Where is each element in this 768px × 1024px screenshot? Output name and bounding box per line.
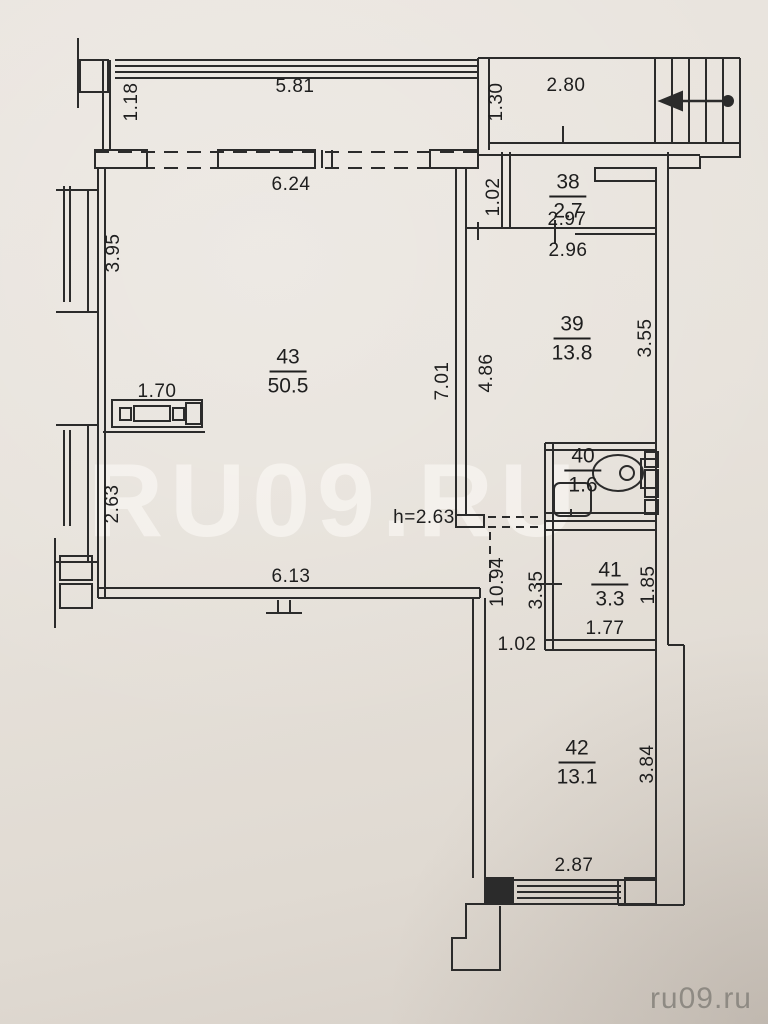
- room42-walls: [452, 598, 656, 970]
- watermark-corner: ru09.ru: [650, 982, 752, 1016]
- dim-room41-height-left: 3.35: [526, 571, 548, 610]
- room-label-42: 42 13.1: [557, 737, 598, 790]
- left-wall-windows: [56, 168, 105, 598]
- dim-room39-height-right: 3.55: [635, 319, 657, 358]
- dim-room39-height-left: 4.86: [476, 354, 498, 393]
- floorplan-page: RU09.RU: [0, 0, 768, 1024]
- dim-hall-height: 10.94: [487, 557, 509, 607]
- room-area: 13.8: [552, 342, 593, 366]
- room-number: 41: [591, 559, 628, 586]
- room-number: 39: [553, 313, 590, 340]
- dim-ceiling-height: h=2.63: [393, 507, 455, 529]
- dim-room38-height: 1.02: [483, 178, 505, 217]
- dim-central-wall-height: 7.01: [432, 362, 454, 401]
- dim-room43-top-width: 6.24: [272, 174, 311, 196]
- right-wall: [618, 152, 684, 905]
- dim-room43-bottom-width: 6.13: [272, 566, 311, 588]
- room-area: 50.5: [268, 375, 309, 399]
- room-label-39: 39 13.8: [552, 313, 593, 366]
- dim-room42-width: 2.87: [555, 855, 594, 877]
- dim-window-lower: 2.63: [102, 485, 124, 524]
- central-wall: [456, 168, 545, 585]
- dim-room41-height-right: 1.85: [638, 566, 660, 605]
- room-label-41: 41 3.3: [591, 559, 628, 612]
- kitchen-counter: [103, 400, 205, 432]
- dim-balcony-width: 5.81: [276, 76, 315, 98]
- room-number: 38: [549, 171, 586, 198]
- room-area: 3.3: [591, 588, 628, 612]
- toilet-icon: [593, 455, 656, 491]
- room-label-38: 38 2.7: [549, 171, 586, 224]
- room-area: 2.7: [549, 200, 586, 224]
- dim-landing-depth: 1.30: [486, 83, 508, 122]
- dashed-wall-room43-top: [95, 150, 478, 168]
- top-wall-band: [478, 143, 740, 181]
- dim-balcony-depth: 1.18: [121, 83, 143, 122]
- dim-room42-height: 3.84: [637, 745, 659, 784]
- room-area: 13.1: [557, 766, 598, 790]
- dim-window-upper: 3.95: [103, 234, 125, 273]
- room-number: 43: [269, 346, 306, 373]
- room43-bottom-wall: [98, 588, 480, 613]
- dim-landing-width: 2.80: [547, 75, 586, 97]
- dim-room41-width: 1.77: [586, 618, 625, 640]
- room-area: 1.6: [564, 474, 601, 498]
- room-number: 40: [564, 445, 601, 472]
- dim-counter-width: 1.70: [138, 381, 177, 403]
- room-label-40: 40 1.6: [564, 445, 601, 498]
- room-number: 42: [558, 737, 595, 764]
- dim-hall-door-width: 1.02: [498, 634, 537, 656]
- room-label-43: 43 50.5: [268, 346, 309, 399]
- left-bottom-corner: [55, 538, 92, 628]
- dim-room39-width: 2.96: [549, 240, 588, 262]
